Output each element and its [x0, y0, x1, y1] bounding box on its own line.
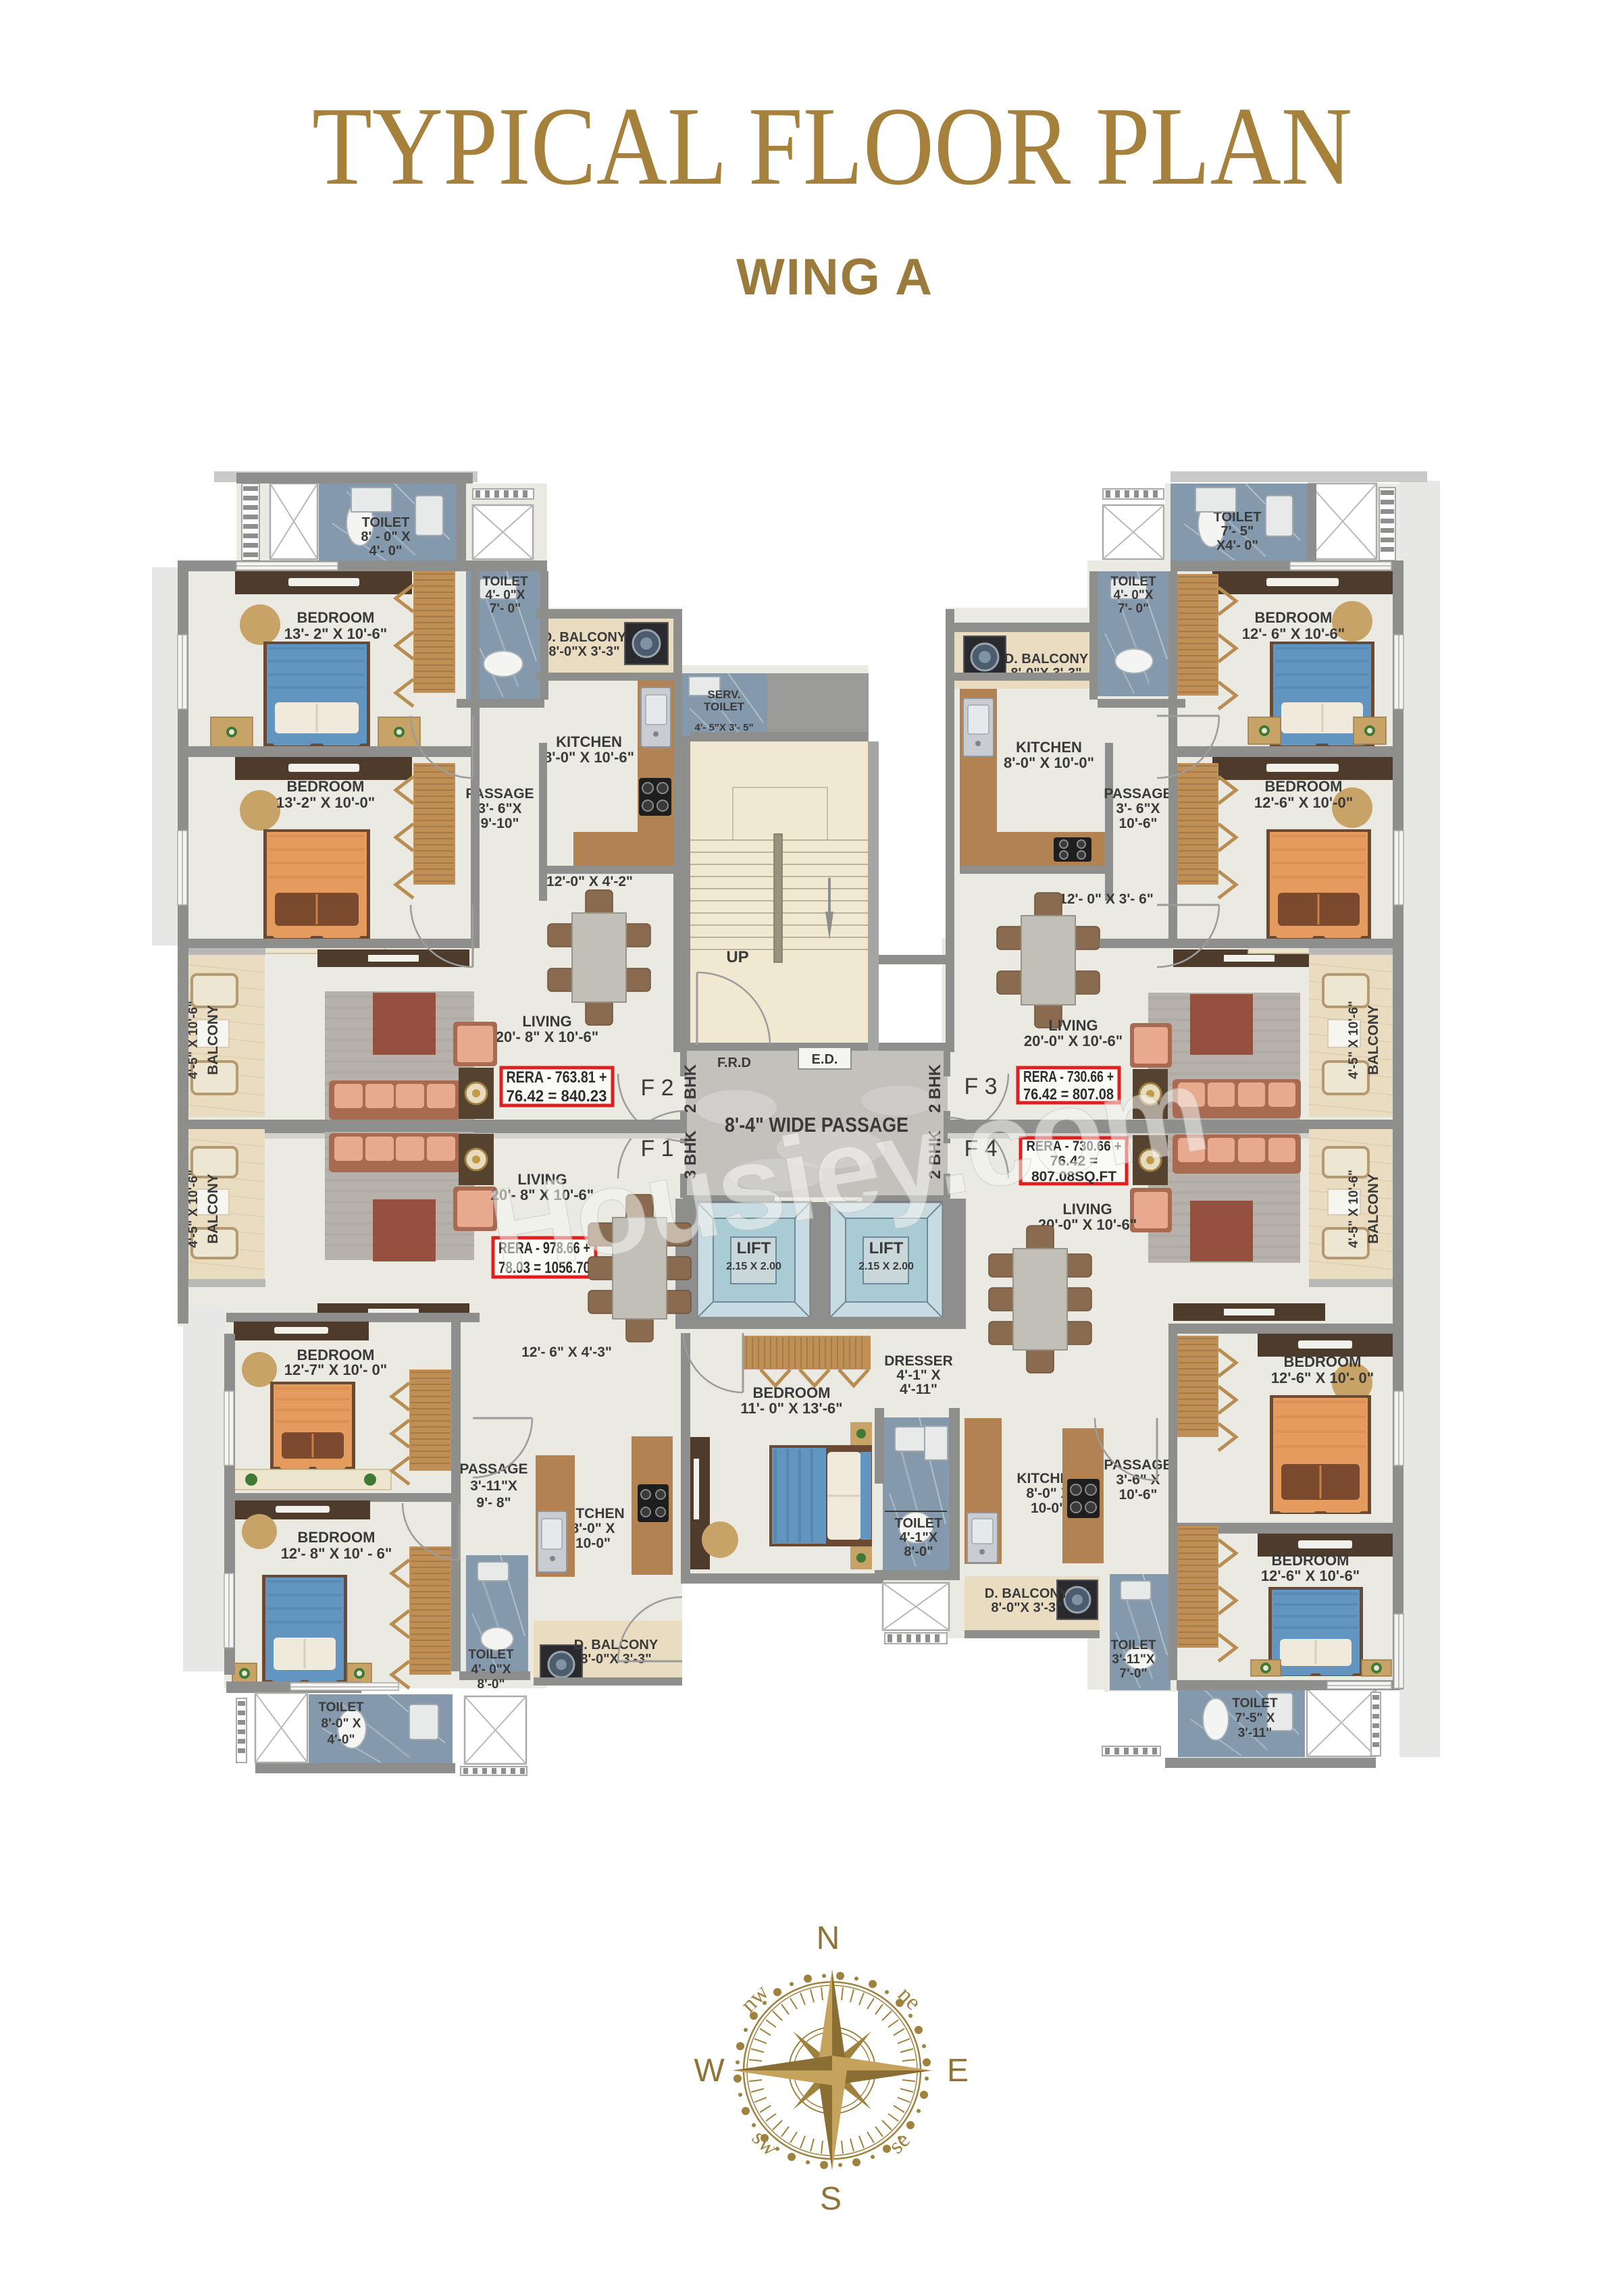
svg-text:7'-5" X: 7'-5" X [1235, 1711, 1275, 1725]
svg-text:KITCHEN: KITCHEN [1016, 739, 1082, 756]
svg-text:4'-1"X: 4'-1"X [900, 1530, 938, 1545]
svg-text:PASSAGE: PASSAGE [1104, 786, 1172, 802]
svg-text:12'-7" X 10'- 0": 12'-7" X 10'- 0" [284, 1361, 387, 1378]
svg-text:4'- 0"X: 4'- 0"X [486, 588, 525, 602]
svg-text:12'-6" X 10'- 0": 12'-6" X 10'- 0" [1271, 1369, 1374, 1386]
svg-text:11'- 0" X 13'-6": 11'- 0" X 13'-6" [740, 1400, 842, 1417]
svg-text:7'- 0": 7'- 0" [1118, 602, 1149, 616]
svg-text:UP: UP [726, 948, 748, 966]
svg-text:BEDROOM: BEDROOM [753, 1384, 831, 1401]
svg-text:LIVING: LIVING [1062, 1201, 1112, 1218]
svg-text:E.D.: E.D. [812, 1052, 838, 1067]
svg-text:7'- 5": 7'- 5" [1221, 524, 1254, 539]
svg-text:TOILET: TOILET [1232, 1696, 1278, 1711]
svg-text:8'-0" X 10'-6": 8'-0" X 10'-6" [544, 749, 634, 766]
svg-text:2.15 X 2.00: 2.15 X 2.00 [726, 1261, 781, 1272]
svg-text:12'-0" X 4'-2": 12'-0" X 4'-2" [546, 874, 633, 889]
svg-text:20'-0" X 10'-6": 20'-0" X 10'-6" [1024, 1033, 1123, 1049]
svg-text:F 2: F 2 [640, 1075, 673, 1101]
svg-text:4'-5" X 10'-6": 4'-5" X 10'-6" [186, 1001, 201, 1079]
svg-text:S: S [820, 2181, 842, 2217]
svg-text:D. BALCONY: D. BALCONY [985, 1586, 1069, 1601]
svg-text:BEDROOM: BEDROOM [298, 1529, 376, 1546]
svg-text:D. BALCONY: D. BALCONY [1004, 652, 1089, 667]
svg-text:4'- 5"X 3'- 5": 4'- 5"X 3'- 5" [694, 722, 753, 733]
svg-text:BALCONY: BALCONY [1366, 1174, 1381, 1244]
svg-text:BEDROOM: BEDROOM [1265, 778, 1343, 795]
svg-text:3'-11"X: 3'-11"X [1112, 1652, 1155, 1667]
svg-text:4'-5" X 10'-6": 4'-5" X 10'-6" [1347, 1001, 1361, 1079]
svg-text:TOILET: TOILET [1110, 1638, 1156, 1652]
svg-text:8'-0": 8'-0" [904, 1544, 933, 1559]
svg-text:TOILET: TOILET [1110, 575, 1156, 589]
svg-text:W: W [694, 2053, 725, 2089]
svg-text:RERA - 763.81 +: RERA - 763.81 + [507, 1068, 607, 1087]
svg-text:2.15 X 2.00: 2.15 X 2.00 [858, 1261, 914, 1272]
svg-text:4'-0": 4'-0" [328, 1733, 355, 1747]
svg-text:E: E [947, 2053, 969, 2089]
svg-text:9'- 8": 9'- 8" [476, 1495, 511, 1511]
svg-text:9'-10": 9'-10" [481, 816, 519, 831]
svg-text:7'- 0": 7'- 0" [490, 602, 521, 616]
svg-text:TOILET: TOILET [704, 700, 745, 713]
svg-text:TOILET: TOILET [482, 575, 528, 589]
svg-text:4'-5" X 10'-6": 4'-5" X 10'-6" [186, 1170, 201, 1248]
svg-text:BALCONY: BALCONY [1366, 1005, 1381, 1075]
svg-text:8'-0" X 10'-0": 8'-0" X 10'-0" [1004, 754, 1094, 771]
svg-text:TOILET: TOILET [468, 1648, 514, 1662]
svg-text:TOILET: TOILET [362, 515, 410, 530]
svg-text:8'-0" X: 8'-0" X [321, 1717, 361, 1731]
svg-text:TOILET: TOILET [318, 1700, 364, 1715]
svg-text:TOILET: TOILET [895, 1516, 943, 1531]
svg-text:13'- 2" X 10'-6": 13'- 2" X 10'-6" [284, 625, 387, 642]
svg-text:LIVING: LIVING [1048, 1017, 1098, 1034]
svg-text:3'-11": 3'-11" [1238, 1726, 1272, 1740]
svg-text:2 BHK: 2 BHK [681, 1064, 700, 1113]
svg-text:12'- 0" X 3'- 6": 12'- 0" X 3'- 6" [1059, 891, 1154, 907]
svg-text:D. BALCONY: D. BALCONY [542, 630, 627, 645]
svg-text:BEDROOM: BEDROOM [1255, 609, 1333, 626]
svg-text:8'-0"X 3'-3": 8'-0"X 3'-3" [580, 1652, 651, 1667]
svg-text:4'- 0"X: 4'- 0"X [1114, 588, 1154, 602]
svg-text:D. BALCONY: D. BALCONY [574, 1638, 659, 1652]
svg-text:4'-5" X 10'-6": 4'-5" X 10'-6" [1347, 1170, 1361, 1248]
svg-text:KITCHEN: KITCHEN [556, 733, 622, 750]
svg-text:SERV.: SERV. [707, 688, 740, 701]
svg-text:13'-2" X 10'-0": 13'-2" X 10'-0" [276, 794, 375, 811]
svg-text:12'- 6" X 4'-3": 12'- 6" X 4'-3" [521, 1345, 612, 1360]
svg-text:DRESSER: DRESSER [884, 1353, 953, 1369]
svg-text:LIFT: LIFT [869, 1239, 904, 1257]
svg-text:10'-6": 10'-6" [1119, 816, 1158, 831]
svg-text:8'-0"X 3'-3": 8'-0"X 3'-3" [991, 1600, 1062, 1615]
svg-text:LIVING: LIVING [522, 1013, 571, 1030]
svg-text:10-0": 10-0" [575, 1536, 611, 1551]
svg-text:4'- 0"X: 4'- 0"X [471, 1663, 511, 1677]
svg-text:3'- 6"X: 3'- 6"X [478, 801, 521, 816]
svg-text:3'- 6"X: 3'- 6"X [1116, 801, 1160, 816]
svg-text:X4'- 0": X4'- 0" [1216, 538, 1258, 553]
svg-text:7'-0": 7'-0" [1120, 1667, 1148, 1681]
svg-text:12'- 6" X 10'-6": 12'- 6" X 10'-6" [1242, 625, 1345, 642]
svg-text:76.42 = 840.23: 76.42 = 840.23 [507, 1087, 607, 1105]
svg-text:20'- 8" X 10'-6": 20'- 8" X 10'-6" [496, 1028, 598, 1045]
svg-text:TYPICAL FLOOR PLAN: TYPICAL FLOOR PLAN [312, 84, 1352, 208]
svg-text:12'-6" X 10'-0": 12'-6" X 10'-0" [1254, 794, 1353, 811]
svg-text:PASSAGE: PASSAGE [1104, 1457, 1172, 1473]
svg-text:12'-6" X 10'-6": 12'-6" X 10'-6" [1261, 1567, 1360, 1584]
svg-text:8'-0"X 3'-3": 8'-0"X 3'-3" [548, 644, 619, 659]
svg-text:F.R.D: F.R.D [717, 1055, 751, 1070]
svg-text:8' - 0" X: 8' - 0" X [361, 529, 411, 544]
svg-text:4'-1" X: 4'-1" X [896, 1367, 940, 1383]
svg-text:N: N [817, 1921, 840, 1956]
svg-text:3'-11"X: 3'-11"X [470, 1478, 517, 1494]
svg-text:BALCONY: BALCONY [205, 1005, 221, 1075]
svg-text:8'-0" X: 8'-0" X [571, 1521, 615, 1536]
svg-text:4'- 0": 4'- 0" [369, 544, 403, 558]
svg-text:BEDROOM: BEDROOM [297, 609, 375, 626]
svg-text:4'-11": 4'-11" [900, 1382, 937, 1397]
svg-text:WING A: WING A [736, 249, 933, 306]
svg-text:12'- 8" X 10' - 6": 12'- 8" X 10' - 6" [281, 1545, 392, 1562]
svg-text:BALCONY: BALCONY [205, 1174, 221, 1244]
svg-text:10-0": 10-0" [1031, 1501, 1066, 1516]
svg-text:BEDROOM: BEDROOM [1284, 1353, 1362, 1370]
svg-text:8'-0": 8'-0" [478, 1677, 505, 1692]
svg-text:BEDROOM: BEDROOM [1272, 1552, 1349, 1569]
svg-text:BEDROOM: BEDROOM [287, 778, 365, 795]
svg-text:10'-6": 10'-6" [1119, 1487, 1158, 1503]
